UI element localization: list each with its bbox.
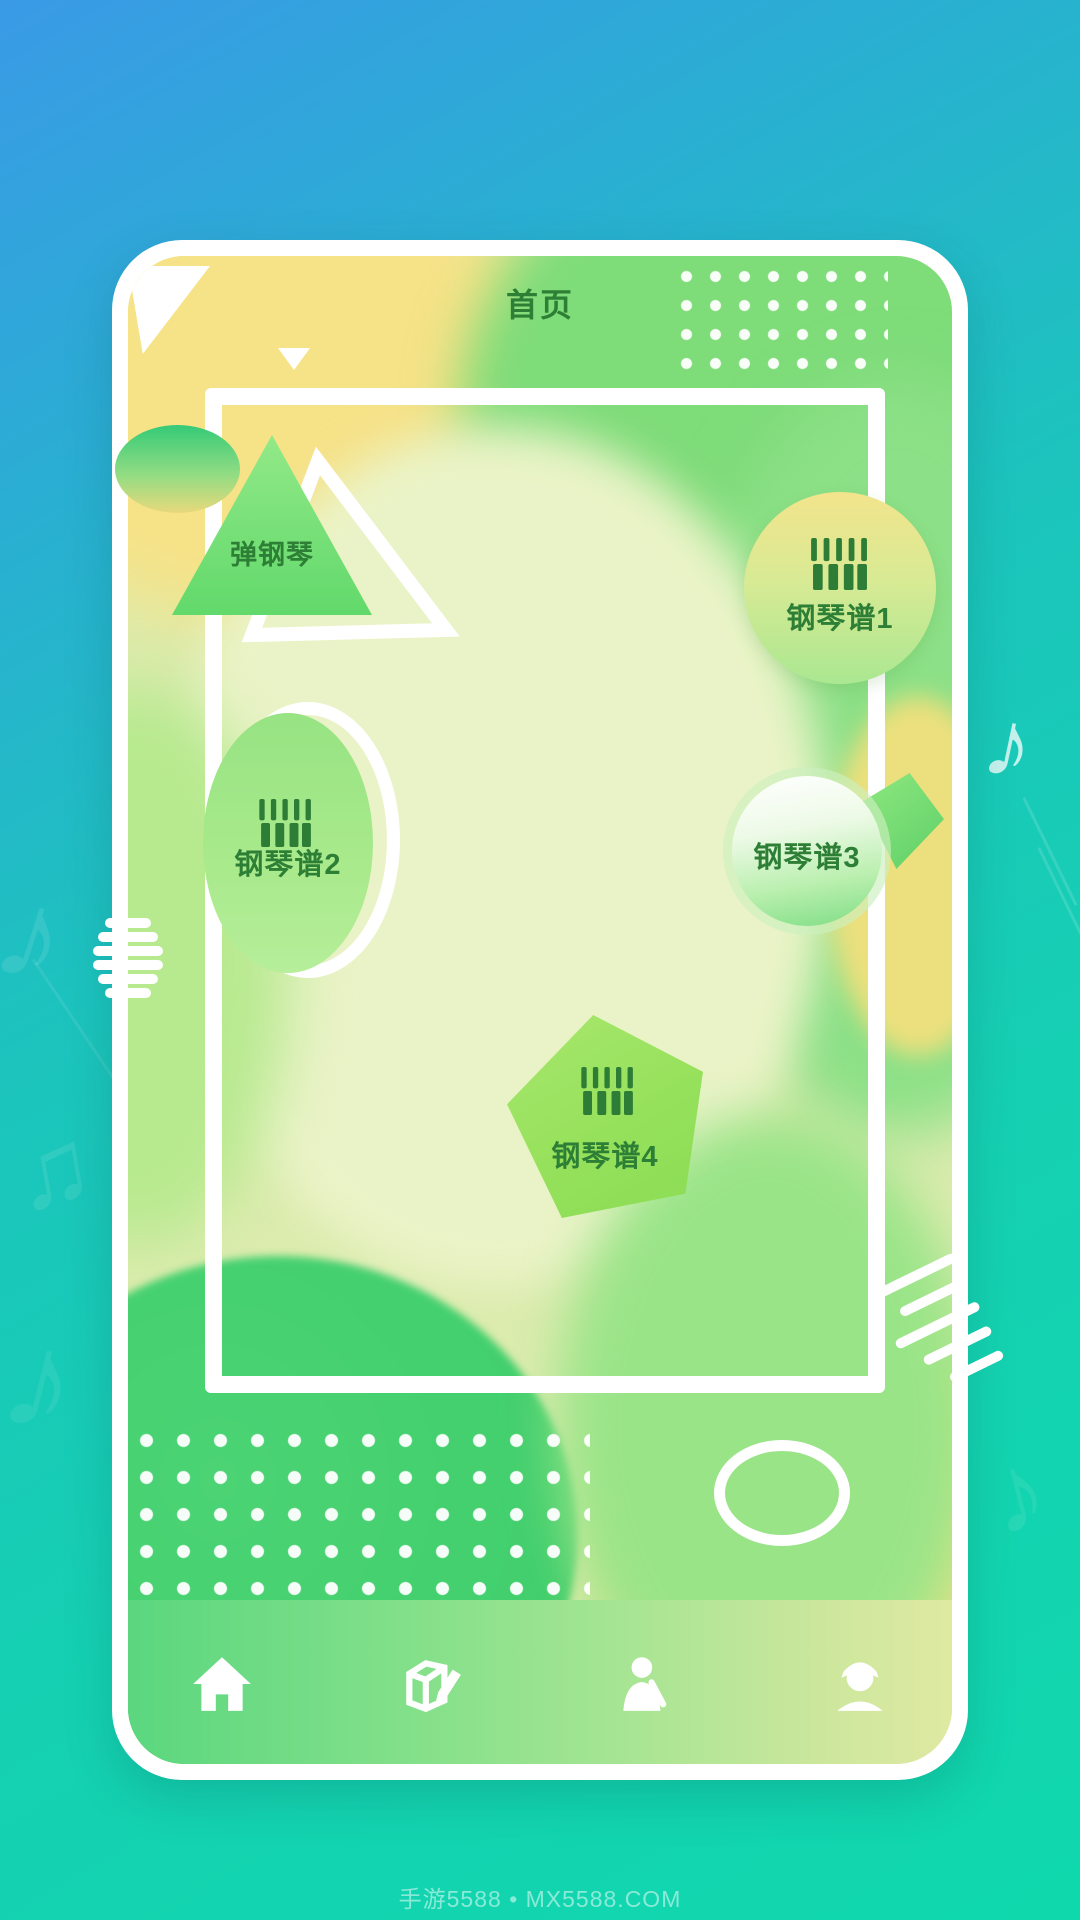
dot-grid (128, 1422, 590, 1598)
nav-home-button[interactable] (182, 1646, 262, 1726)
score2-label: 钢琴谱2 (203, 841, 373, 883)
edit-box-icon (399, 1651, 465, 1722)
home-icon (189, 1651, 255, 1722)
dash-decoration (92, 918, 164, 998)
page-title: 首页 (112, 280, 968, 326)
score3-label: 钢琴谱3 (732, 834, 882, 876)
score1-label: 钢琴谱1 (744, 595, 936, 637)
music-note-icon: ♪ (0, 854, 87, 1017)
bottom-nav-bar (128, 1600, 952, 1764)
music-note-icon: ♪ (0, 1294, 95, 1468)
score1-button[interactable]: 钢琴谱1 (744, 492, 936, 684)
score2-button[interactable]: 钢琴谱2 (203, 713, 373, 973)
music-note-icon: ♪ (975, 1425, 1059, 1562)
piano-keys-icon (809, 538, 871, 595)
home-card: 首页 弹钢琴 钢琴谱1 (112, 240, 968, 1780)
staff-line (1037, 847, 1080, 956)
nav-profile-button[interactable] (820, 1646, 900, 1726)
nav-edit-button[interactable] (392, 1646, 472, 1726)
piano-keys-icon (579, 1067, 637, 1120)
app-screen: ♪ ♪ ♪ ♫ ♪ ♪ (0, 0, 1080, 1920)
music-note-icon: ♪ (974, 686, 1044, 804)
gradient-ellipse-decoration (115, 425, 240, 513)
music-note-icon: ♫ (4, 1104, 102, 1236)
person-pencil-icon (613, 1651, 679, 1722)
watermark-text: 手游5588 • MX5588.COM (0, 1880, 1080, 1914)
staff-line (1022, 797, 1077, 906)
nav-compose-button[interactable] (606, 1646, 686, 1726)
person-cap-icon (827, 1651, 893, 1722)
ellipse-outline-decoration (714, 1440, 850, 1546)
score3-button[interactable]: 钢琴谱3 (732, 776, 882, 926)
